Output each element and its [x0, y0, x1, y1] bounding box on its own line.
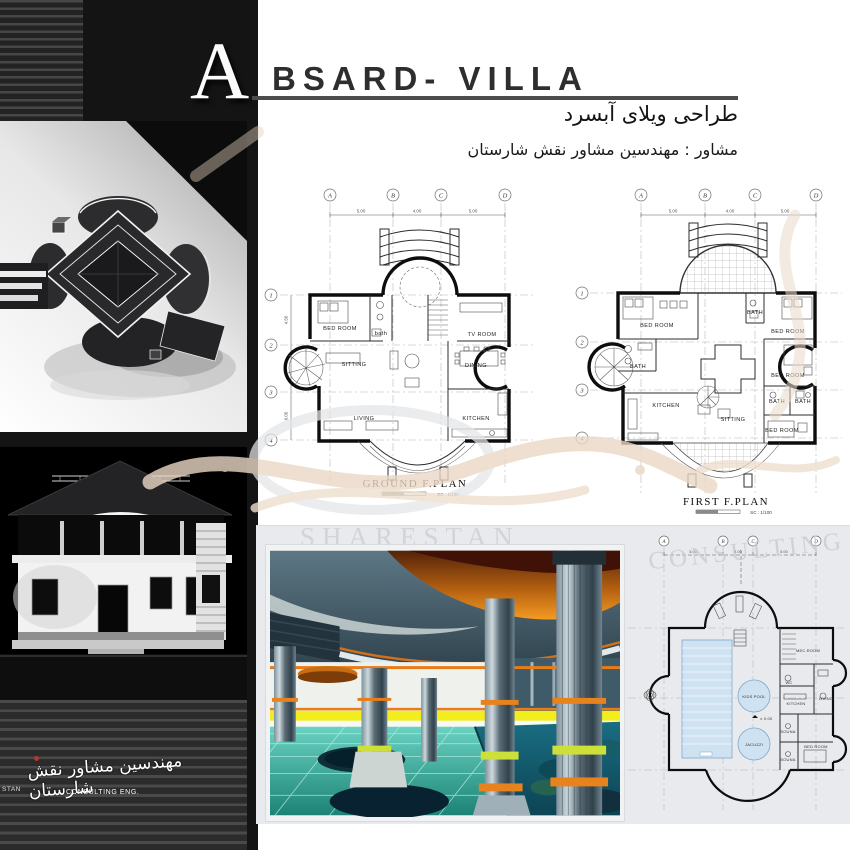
ground-plan-title: GROUND F.PLAN SC : 1/100: [363, 478, 468, 497]
svg-text:DINING: DINING: [465, 363, 487, 369]
svg-text:KITCHEN: KITCHEN: [652, 403, 679, 409]
svg-text:SOUNA: SOUNA: [780, 729, 795, 734]
villa-elevation-render: [0, 447, 247, 700]
striped-turret: [196, 523, 226, 640]
villa-aerial-render: [0, 121, 247, 432]
svg-text:SOUNA: SOUNA: [780, 757, 795, 762]
svg-text:SC : 1/100: SC : 1/100: [750, 510, 772, 515]
title-drop-cap: A: [190, 30, 249, 112]
ground-plan-walls: [285, 258, 509, 441]
svg-text:5.00: 5.00: [669, 209, 678, 214]
decor-stripes-top: [0, 0, 83, 121]
svg-text:BATH: BATH: [630, 364, 646, 370]
spiral-stair: [288, 349, 325, 386]
svg-text:KITCHEN: KITCHEN: [462, 416, 489, 422]
svg-text:1: 1: [269, 293, 272, 300]
svg-text:5.00: 5.00: [357, 209, 366, 214]
svg-text:KITCHEN: KITCHEN: [787, 701, 806, 706]
svg-text:SITTING: SITTING: [342, 362, 367, 368]
svg-text:JACUZZI: JACUZZI: [745, 742, 763, 747]
svg-text:BED ROOM: BED ROOM: [804, 744, 827, 749]
firm-logo-consulting-text: CONSULTING ENG.: [66, 789, 139, 796]
pool-interior-render: [266, 545, 624, 821]
spiral-stair-small: [697, 386, 719, 408]
svg-text:± 0.00: ± 0.00: [760, 716, 773, 721]
svg-text:B: B: [391, 193, 395, 200]
ground-room-labels: BED ROOM bath TV ROOM SITTING DINING LIV…: [323, 326, 496, 422]
svg-text:SC : 1/100: SC : 1/100: [437, 492, 459, 497]
svg-text:1: 1: [580, 291, 583, 298]
svg-text:BED ROOM: BED ROOM: [323, 326, 357, 332]
svg-text:4.50: 4.50: [284, 315, 289, 324]
svg-text:LIVING: LIVING: [354, 416, 375, 422]
title-underline: [252, 96, 738, 100]
svg-text:LIVING: LIVING: [819, 696, 833, 701]
presentation-sheet: مهندسین مشاور نقش شارستان STAN CONSULTIN…: [0, 0, 850, 850]
svg-text:5.00: 5.00: [469, 209, 478, 214]
svg-text:BED ROOM: BED ROOM: [765, 428, 799, 434]
svg-text:WC: WC: [785, 680, 792, 685]
svg-text:BATH: BATH: [769, 399, 785, 405]
svg-text:GROUND F.PLAN: GROUND F.PLAN: [363, 478, 468, 490]
spiral-stair-large: [595, 348, 633, 386]
svg-text:BED ROOM: BED ROOM: [640, 323, 674, 329]
svg-text:D: D: [502, 193, 508, 200]
svg-text:bath: bath: [375, 331, 388, 337]
ground-floor-plan: A B C D 1 2 3 4 5.00 4.00 5.00 4.50 6.00: [262, 183, 544, 505]
consultant-persian: مشاور : مهندسین مشاور نقش شارستان: [390, 140, 738, 159]
svg-text:4.00: 4.00: [413, 209, 422, 214]
svg-text:BATH: BATH: [795, 399, 811, 405]
basement-swimming-pool: [682, 640, 732, 758]
svg-text:TV ROOM: TV ROOM: [468, 332, 497, 338]
svg-text:BED ROOM: BED ROOM: [771, 373, 805, 379]
page-title: BSARD- VILLA: [272, 60, 589, 98]
svg-text:5.00: 5.00: [781, 209, 790, 214]
ground-plan-partitions: [288, 295, 509, 480]
svg-text:BED ROOM: BED ROOM: [771, 329, 805, 335]
svg-text:A: A: [638, 193, 643, 200]
svg-text:B: B: [703, 193, 707, 200]
svg-text:C: C: [439, 193, 444, 200]
svg-text:6.00: 6.00: [284, 411, 289, 420]
svg-text:A: A: [327, 193, 332, 200]
svg-text:KIDS POOL: KIDS POOL: [742, 694, 766, 699]
first-floor-plan: A B C D 1 2 3 4 5.00 4.00 5.00: [568, 183, 850, 528]
svg-text:MEC.ROOM: MEC.ROOM: [796, 648, 820, 653]
svg-text:FIRST F.PLAN: FIRST F.PLAN: [683, 496, 769, 508]
svg-text:4.00: 4.00: [726, 209, 735, 214]
firm-logo-left-text: STAN: [2, 786, 21, 793]
first-plan-title: FIRST F.PLAN SC : 1/100: [683, 496, 772, 515]
svg-text:SITTING: SITTING: [721, 417, 746, 423]
svg-text:BATH: BATH: [747, 310, 763, 316]
balcony-slats: [0, 263, 48, 309]
floor-pool-2: [330, 784, 449, 817]
subtitle-persian: طراحی ویلای آبسرد: [430, 102, 738, 126]
firm-logo-mark: [34, 756, 39, 761]
svg-text:C: C: [753, 193, 758, 200]
first-plan-walls: [589, 245, 815, 443]
svg-text:D: D: [813, 193, 819, 200]
